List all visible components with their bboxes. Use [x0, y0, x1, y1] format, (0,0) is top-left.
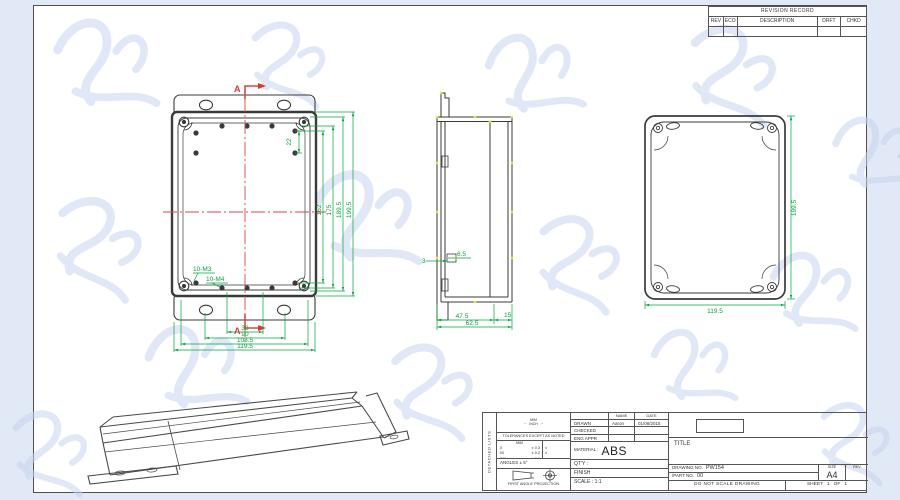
drawn-date: 01/08/2015 — [635, 420, 669, 427]
projection-label: FIRST ANGLE PROJECTION — [497, 482, 570, 486]
drawing-no-label: DRAWING NO. — [672, 466, 703, 471]
title-cell: TITLE — [669, 438, 868, 465]
sheet-total: 1 — [844, 483, 847, 488]
projection-cell: FIRST ANGLE PROJECTION — [497, 469, 571, 490]
col-drft: DRFT — [818, 17, 842, 26]
svg-text:119.5: 119.5 — [707, 308, 723, 315]
sheet-num: 1 — [827, 483, 830, 488]
material-cell: MATERIAL : ABS — [571, 442, 669, 460]
frustum-icon — [511, 470, 535, 481]
size-cell: SIZE A4 — [819, 465, 846, 481]
drawing-no-cell: DRAWING NO. PW154 — [669, 465, 819, 473]
thread-label-m4: 10-M4 — [206, 276, 225, 283]
sheet-cell: SHEET 1 OF 1 — [786, 481, 868, 490]
section-label-top: A — [234, 84, 241, 94]
arrow-left-icon: ← — [523, 421, 527, 425]
material-value: ABS — [602, 445, 628, 457]
col-chkd: CHKD — [841, 17, 866, 26]
rev-cell: REV — [846, 465, 868, 481]
back-view: 199.5 119.5 — [645, 116, 798, 315]
svg-text:22: 22 — [286, 138, 293, 146]
drawing-sheet-app: A A — [0, 0, 900, 500]
part-no-label: /PART NO. — [672, 474, 694, 479]
units-inch: INCH — [529, 423, 538, 427]
material-label: MATERIAL : — [574, 448, 599, 453]
finish-label: FINISH — [571, 469, 669, 478]
col-description: DESCRIPTION — [738, 17, 818, 26]
date-header: DATE — [635, 413, 669, 420]
side-dimension-labels: 6.5 3 47.5 15 62.5 — [422, 251, 512, 327]
svg-text:62.5: 62.5 — [466, 320, 479, 327]
angles-tolerance: ANGLES ± 5° — [497, 459, 571, 469]
section-label-bottom: A — [234, 326, 241, 336]
drawn-label: DRAWN — [571, 420, 609, 427]
arrow-right-icon: → — [540, 421, 544, 425]
scale-label: SCALE : 1:1 — [571, 478, 669, 490]
drawn-name: Aaron — [609, 420, 635, 427]
part-no-value: 00 — [697, 474, 703, 480]
qty-label: QT'Y : — [571, 460, 669, 469]
svg-text:6.5: 6.5 — [457, 251, 466, 258]
isometric-view — [88, 392, 409, 484]
of-label: OF — [834, 483, 841, 488]
vertex-marks — [436, 92, 514, 322]
revision-header-row: REV ECO DESCRIPTION DRFT CHKD — [709, 17, 866, 27]
front-view: A A — [163, 83, 355, 352]
svg-text:47.5: 47.5 — [456, 313, 469, 320]
title-label: TITLE — [669, 438, 868, 447]
lid-corner-screws — [654, 122, 777, 293]
tolerance-mm-col: MM .0± 0.3 .00± 0.2 .000± 0.1 — [497, 441, 543, 459]
checked-label: CHECKED — [571, 427, 609, 434]
stamp-area — [669, 413, 868, 438]
name-header: NAME — [609, 413, 635, 420]
tolerance-inch-col: ± ± ± — [543, 441, 571, 459]
revision-record-table: REVISION RECORD REV ECO DESCRIPTION DRFT… — [708, 6, 867, 37]
svg-text:162: 162 — [316, 204, 323, 215]
side-view: 6.5 3 47.5 15 62.5 — [422, 92, 513, 330]
part-no-cell: /PART NO. 00 — [669, 473, 819, 481]
col-eco: ECO — [724, 17, 738, 26]
thread-label-m3: 10-M3 — [193, 266, 212, 273]
revision-empty-row — [709, 27, 866, 37]
svg-text:175: 175 — [326, 204, 333, 215]
sheet-label: SHEET — [807, 483, 823, 488]
svg-text:199.5: 199.5 — [346, 201, 353, 218]
tolerance-heading: TOLERANCES EXCEPT AS NOTED — [497, 433, 571, 441]
stamp-box — [696, 419, 744, 433]
no-scale-note: DO NOT SCALE DRAWING — [669, 481, 786, 490]
svg-text:119.5: 119.5 — [237, 343, 253, 350]
title-block: DETACHED LISTS ← MM INCH → TOLERANCES EX… — [482, 412, 867, 491]
size-value: A4 — [819, 470, 845, 480]
svg-text:3: 3 — [422, 258, 426, 265]
tol-col-header: MM — [497, 441, 542, 446]
svg-text:199.5: 199.5 — [791, 199, 798, 216]
side-strip-label: DETACHED LISTS — [483, 413, 496, 490]
eng-appr-label: ENG APPR — [571, 435, 609, 442]
drawing-no-value: PW154 — [706, 466, 724, 472]
rev-label: REV — [846, 465, 868, 470]
revision-record-title: REVISION RECORD — [709, 7, 866, 17]
units-cell: ← MM INCH → — [497, 413, 571, 433]
side-strip: DETACHED LISTS — [483, 413, 497, 490]
col-rev: REV — [709, 17, 724, 26]
svg-text:15: 15 — [504, 312, 512, 319]
svg-text:189.5: 189.5 — [336, 201, 343, 218]
